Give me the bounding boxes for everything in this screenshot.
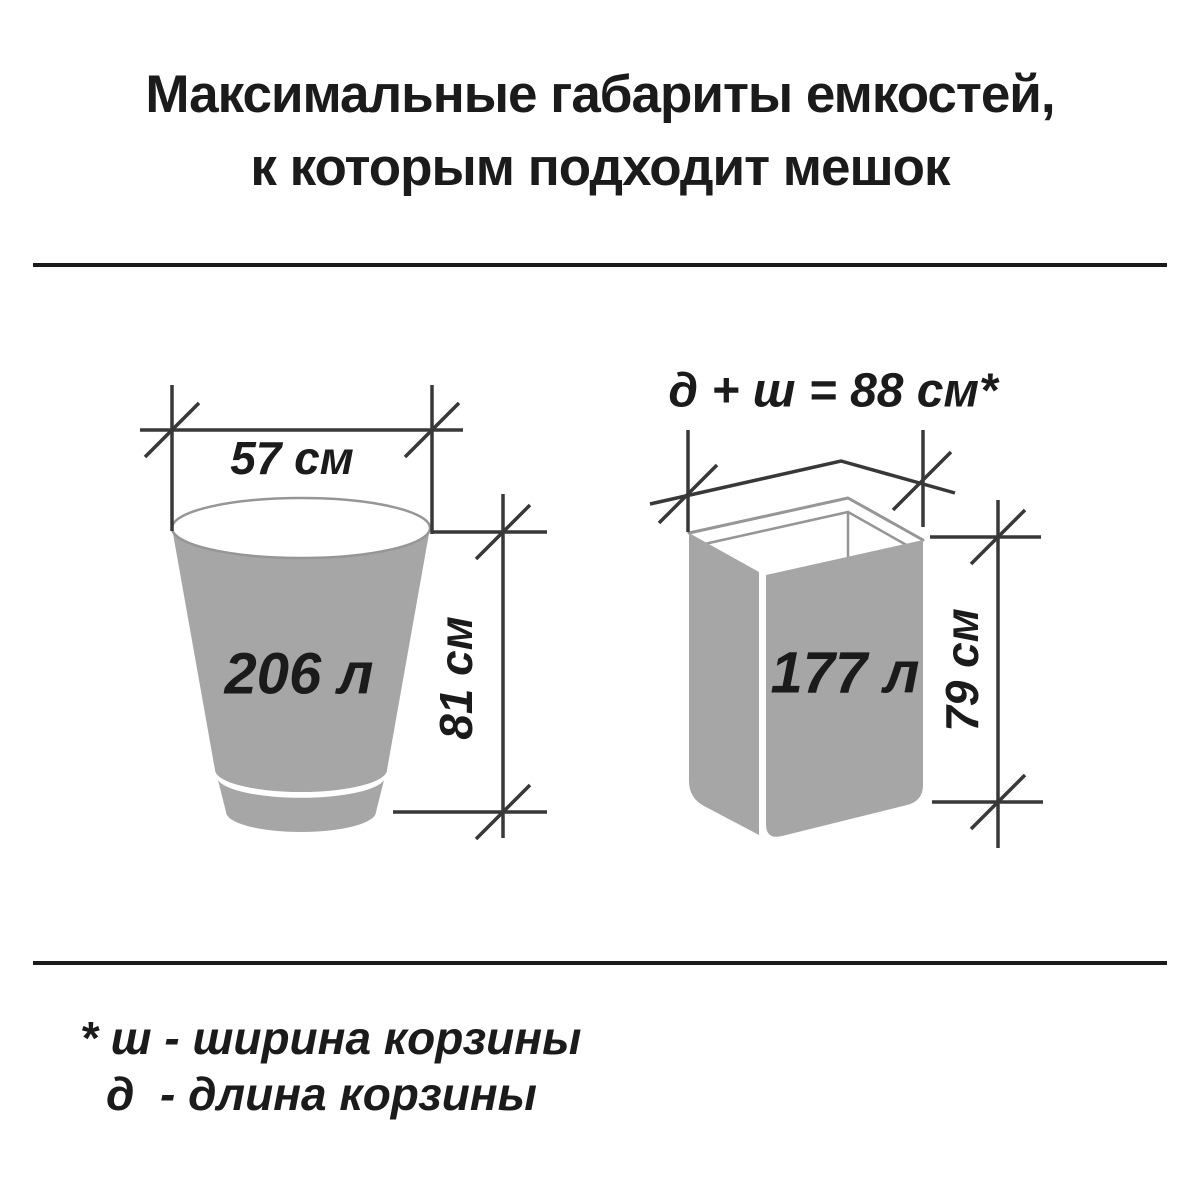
bucket-volume-label: 206 л <box>225 641 374 708</box>
basket-left-face <box>689 533 759 835</box>
bucket-rim-opening <box>172 498 430 558</box>
bucket-width-label: 57 см <box>230 431 354 485</box>
bucket-height-label: 81 см <box>429 616 483 740</box>
basket-formula-label: д + ш = 88 см* <box>668 364 997 419</box>
footnote-legend: * ш - ширина корзины д - длина корзины <box>80 1010 581 1122</box>
footnote-length-definition: д - длина корзины <box>106 1066 581 1122</box>
footnote-width-definition: * ш - ширина корзины <box>80 1010 581 1066</box>
basket-height-label: 79 см <box>935 608 989 732</box>
basket-volume-label: 177 л <box>771 640 920 707</box>
